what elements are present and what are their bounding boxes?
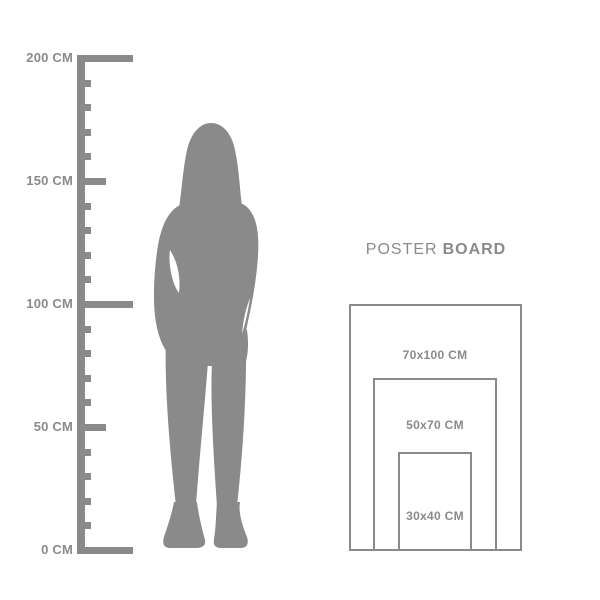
ruler-tick-label: 50 CM xyxy=(6,419,73,435)
ruler-minor-tick xyxy=(77,227,91,234)
ruler-tick-label: 0 CM xyxy=(6,542,73,558)
size-comparison-diagram: 200 CM150 CM100 CM50 CM0 CM POSTERBOARD xyxy=(0,0,600,600)
ruler-minor-tick xyxy=(77,375,91,382)
ruler-minor-tick xyxy=(77,522,91,529)
ruler-tick-label: 150 CM xyxy=(6,173,73,189)
silhouette-left-boot xyxy=(163,502,205,548)
poster-size-rect: 30x40 CM xyxy=(398,452,472,551)
ruler-major-tick xyxy=(77,547,133,554)
height-ruler: 200 CM150 CM100 CM50 CM0 CM xyxy=(0,0,140,600)
poster-board-title: POSTERBOARD xyxy=(366,241,506,259)
poster-size-label: 50x70 CM xyxy=(375,418,495,432)
ruler-minor-tick xyxy=(77,399,91,406)
ruler-minor-tick xyxy=(77,449,91,456)
ruler-minor-tick xyxy=(77,153,91,160)
ruler-minor-tick xyxy=(77,473,91,480)
silhouette-left-leg xyxy=(166,332,209,506)
silhouette-right-leg xyxy=(211,332,246,506)
woman-silhouette xyxy=(145,118,275,558)
ruler-minor-tick xyxy=(77,80,91,87)
poster-board-title-bold: BOARD xyxy=(443,241,507,258)
poster-board-title-regular: POSTER xyxy=(366,241,438,258)
silhouette-right-boot xyxy=(214,502,248,548)
ruler-major-tick xyxy=(77,55,133,62)
poster-size-label: 30x40 CM xyxy=(400,509,470,523)
ruler-minor-tick xyxy=(77,104,91,111)
ruler-major-tick xyxy=(77,178,106,185)
ruler-minor-tick xyxy=(77,276,91,283)
ruler-minor-tick xyxy=(77,203,91,210)
ruler-minor-tick xyxy=(77,129,91,136)
ruler-minor-tick xyxy=(77,498,91,505)
ruler-tick-label: 200 CM xyxy=(6,50,73,66)
poster-size-label: 70x100 CM xyxy=(351,348,520,362)
ruler-minor-tick xyxy=(77,252,91,259)
ruler-major-tick xyxy=(77,301,133,308)
ruler-minor-tick xyxy=(77,350,91,357)
ruler-major-tick xyxy=(77,424,106,431)
ruler-tick-label: 100 CM xyxy=(6,296,73,312)
ruler-minor-tick xyxy=(77,326,91,333)
